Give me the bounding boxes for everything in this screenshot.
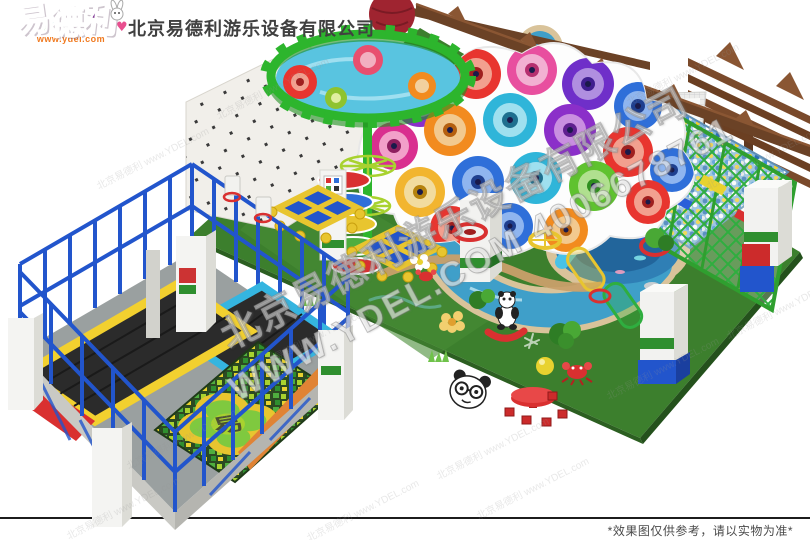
logo-char-1: 易 [14, 0, 53, 42]
yellow-ball [536, 357, 554, 375]
column-bottom-right [638, 284, 690, 384]
disclaimer-text: *效果图仅供参考，请以实物为准* [608, 522, 793, 539]
panda-face [447, 368, 493, 412]
company-name: 北京易德利游乐设备有限公司 [128, 15, 375, 41]
logo-char-2: 德 [50, 5, 84, 42]
render-page: 易 [0, 0, 810, 540]
company-logo: 易 德 利 ♥ www.ydel.com [12, 2, 130, 62]
bunny-icon [106, 0, 128, 22]
playground-render: 易 [0, 0, 810, 540]
